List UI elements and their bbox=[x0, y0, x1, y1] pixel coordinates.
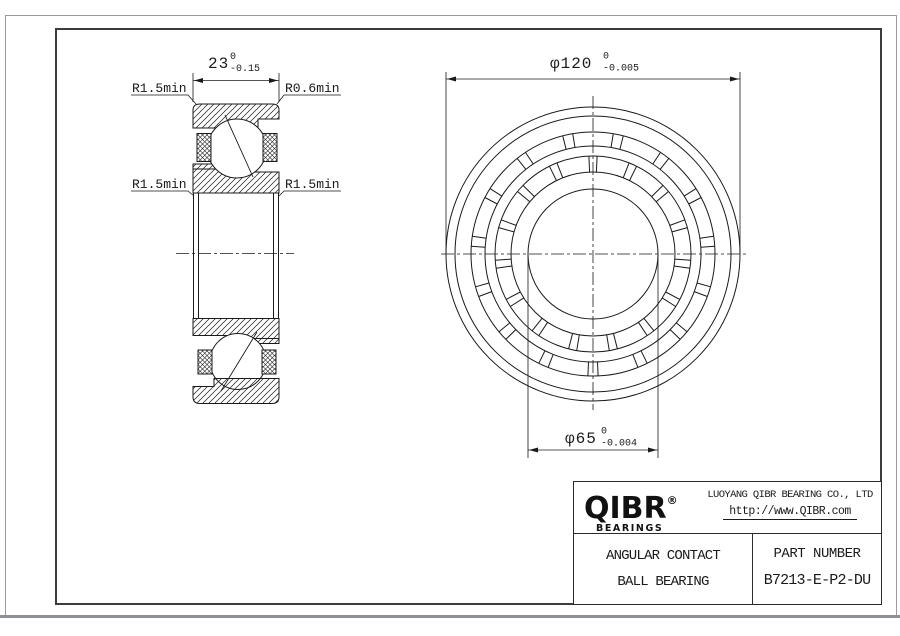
bore-dim-value: φ65 bbox=[565, 430, 597, 448]
bore-dim-tol-upper: 0 bbox=[601, 427, 607, 438]
bore-dim-tol-lower: -0.004 bbox=[601, 439, 637, 450]
cage-top-right-hatch bbox=[263, 134, 277, 162]
width-arrow-left bbox=[194, 78, 203, 83]
width-ext-lines bbox=[193, 73, 279, 102]
cage-bottom-left-hatch bbox=[198, 350, 212, 374]
company-name: LUOYANG QIBR BEARING CO., LTD bbox=[702, 489, 878, 501]
cage-top-left-hatch bbox=[197, 134, 211, 162]
od-dim-tol-lower: -0.005 bbox=[603, 64, 639, 75]
width-arrow-right bbox=[269, 78, 278, 83]
title-block-body: ANGULAR CONTACT BALL BEARING PART NUMBER… bbox=[574, 534, 881, 604]
company-website-link[interactable]: http://www.QIBR.com bbox=[723, 505, 857, 520]
leader-top-left bbox=[131, 95, 196, 104]
od-arrow-left bbox=[447, 77, 456, 82]
product-type-line2: BALL BEARING bbox=[574, 569, 752, 595]
brand-name: QIBR® bbox=[584, 486, 694, 524]
label-radius-mid-left: R1.5min bbox=[132, 177, 187, 192]
ball-top bbox=[208, 119, 267, 178]
od-arrow-right bbox=[730, 77, 739, 82]
outer-ring-bottom bbox=[193, 379, 279, 404]
label-radius-top-left: R1.5min bbox=[132, 81, 187, 96]
brand-subtext: BEARINGS bbox=[596, 523, 694, 534]
title-block: QIBR® BEARINGS LUOYANG QIBR BEARING CO.,… bbox=[573, 481, 882, 605]
bore-lines bbox=[194, 193, 279, 319]
cage-bottom-right-hatch bbox=[262, 350, 276, 374]
bore-arrow-right bbox=[648, 448, 657, 453]
title-block-header: QIBR® BEARINGS LUOYANG QIBR BEARING CO.,… bbox=[574, 482, 881, 534]
od-dim-value: φ120 bbox=[550, 55, 592, 73]
company-logo: QIBR® BEARINGS bbox=[584, 486, 694, 534]
brand-text: QIBR bbox=[584, 491, 667, 526]
part-number-cell: PART NUMBER B7213-E-P2-DU bbox=[753, 534, 881, 604]
label-radius-mid-right: R1.5min bbox=[285, 177, 340, 192]
width-dimension bbox=[193, 73, 279, 102]
label-radius-top-right: R0.6min bbox=[285, 81, 340, 96]
width-dim-tol-lower: -0.15 bbox=[230, 64, 260, 75]
drawing-sheet: 23 0 -0.15 R1.5min R0.6min R1.5min R1.5m… bbox=[0, 0, 900, 636]
section-view bbox=[176, 104, 294, 404]
company-info: LUOYANG QIBR BEARING CO., LTD http://www… bbox=[702, 489, 878, 520]
product-type-line1: ANGULAR CONTACT bbox=[574, 543, 752, 569]
bore-arrow-left bbox=[529, 448, 538, 453]
leader-top-right bbox=[277, 95, 341, 104]
width-dim-tol-upper: 0 bbox=[230, 52, 236, 63]
od-dim-tol-upper: 0 bbox=[603, 52, 609, 63]
part-number-value: B7213-E-P2-DU bbox=[753, 567, 881, 594]
front-view bbox=[441, 96, 747, 410]
product-type-cell: ANGULAR CONTACT BALL BEARING bbox=[574, 534, 753, 604]
registered-trademark-icon: ® bbox=[667, 494, 678, 507]
part-number-label: PART NUMBER bbox=[753, 541, 881, 567]
width-dim-value: 23 bbox=[208, 55, 229, 73]
